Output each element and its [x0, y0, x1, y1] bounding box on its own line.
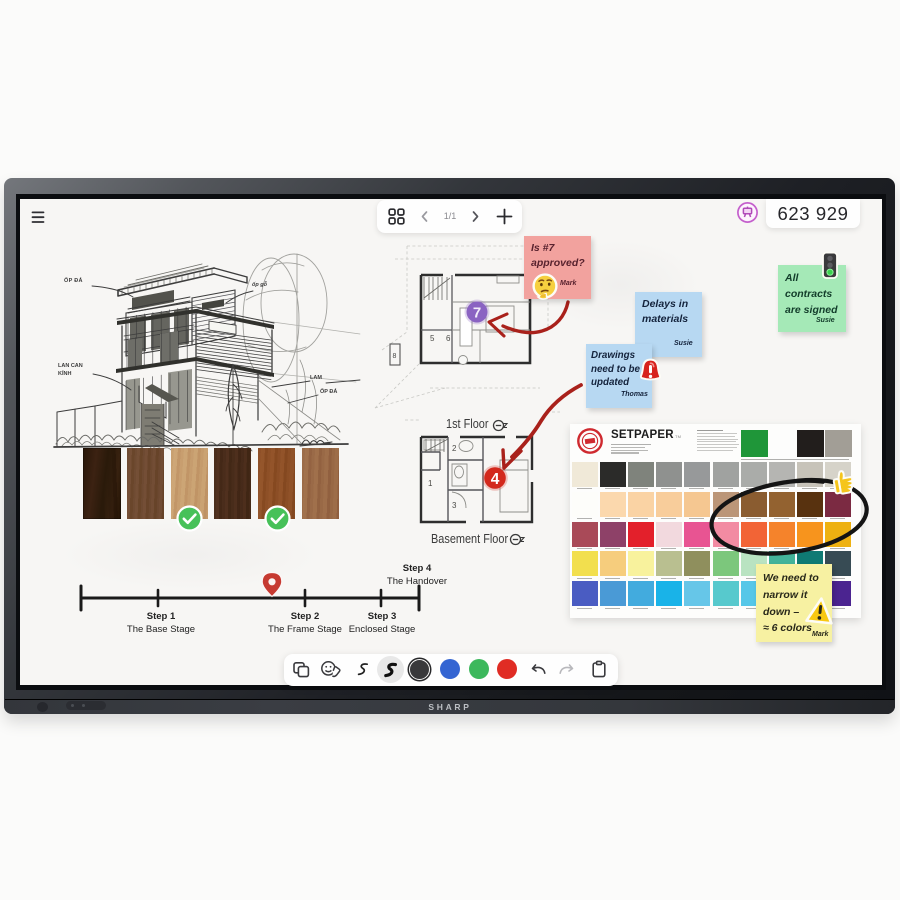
svg-text:1: 1	[428, 479, 433, 488]
svg-text:4: 4	[491, 471, 500, 488]
svg-text:7: 7	[473, 305, 481, 322]
svg-text:3: 3	[452, 501, 457, 510]
svg-text:6: 6	[446, 334, 451, 343]
svg-text:2: 2	[452, 444, 457, 453]
svg-text:8: 8	[393, 353, 397, 360]
svg-text:5: 5	[430, 334, 435, 343]
